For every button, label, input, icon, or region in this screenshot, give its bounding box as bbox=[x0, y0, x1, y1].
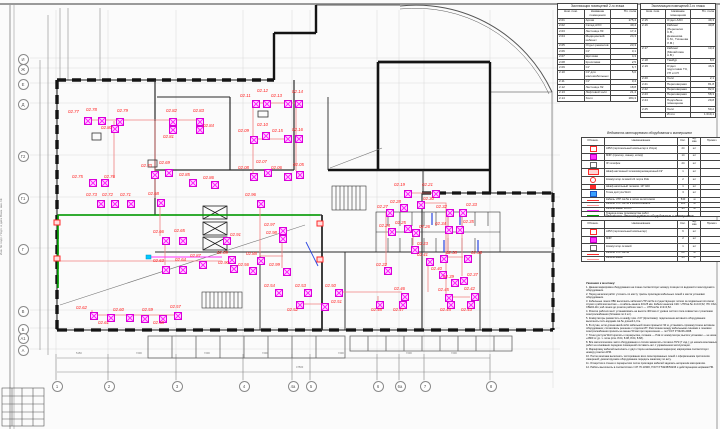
grid-axis-bubble: 3 bbox=[172, 381, 183, 392]
legend-demount-title: Ведомость демонтируемого оборудования и … bbox=[581, 214, 718, 218]
grid-axis-bubble: 6 bbox=[373, 381, 384, 392]
col-header-area: Пл. пола bbox=[691, 9, 716, 18]
sheet-side-text: Инв. № подл. Подп. и дата Взам. инв. № bbox=[0, 198, 3, 255]
dimension-label: 5150 bbox=[76, 352, 82, 355]
grid-axis-bubble: А1 bbox=[18, 333, 29, 344]
legend-symbol bbox=[590, 245, 597, 251]
grid-axis-bubble: 4а bbox=[288, 381, 299, 392]
grid-axis-bubble: Е bbox=[18, 79, 29, 90]
legend-col-qty: Кол. bbox=[678, 138, 689, 146]
grid-axis-bubble: Г bbox=[18, 244, 29, 255]
wall-equipment-symbols bbox=[54, 111, 323, 262]
existing-equipment-box bbox=[148, 160, 157, 167]
legend-symbol bbox=[587, 200, 599, 201]
legend-symbol bbox=[590, 237, 597, 243]
legend-mount-title: Ведомость монтируемого оборудования и ма… bbox=[581, 131, 718, 135]
notes-title: Указания к монтажу: bbox=[586, 281, 718, 285]
title-stamp bbox=[2, 388, 44, 426]
room-row: 2.24Подсобное помещение29,8 bbox=[641, 98, 716, 107]
riser-blue-line bbox=[306, 242, 318, 266]
col-header-name: Название помещения bbox=[666, 9, 691, 18]
note-line: 11. Отверстия в стенах и перекрытиях пос… bbox=[586, 362, 718, 365]
grid-axis-bubble: 1 bbox=[52, 381, 63, 392]
drawing-sheet: { "explication_left": { "title": "Экспли… bbox=[0, 0, 720, 429]
legend-symbol bbox=[590, 229, 597, 235]
room-row: Итого1 019,1 bbox=[641, 112, 716, 117]
existing-equipment-box bbox=[258, 111, 268, 117]
note-line: 12. Работы выполнять в соответствии с СП… bbox=[586, 366, 718, 369]
legend-symbol bbox=[587, 210, 599, 211]
work-zone-boundary-green bbox=[58, 215, 320, 288]
grid-axis-bubble: Г2 bbox=[18, 151, 29, 162]
legend-col-note: Примеч. bbox=[701, 138, 720, 146]
legend-symbol bbox=[587, 205, 599, 206]
installation-notes: Указания к монтажу: 1. Данная маркировка… bbox=[586, 281, 718, 370]
legend-row: Шкаф настенный телекоммуникационный 19"1… bbox=[582, 169, 720, 177]
legend-symbol bbox=[590, 185, 596, 189]
note-line: 8. Все металлические части оборудования … bbox=[586, 341, 718, 347]
legend-col-name: Наименование bbox=[605, 138, 678, 146]
legend-row: Кабель-канал45 м bbox=[582, 256, 720, 261]
col-header-name: Название помещения bbox=[584, 9, 611, 18]
grid-axis-bubble: Г1 bbox=[18, 193, 29, 204]
legend-symbol bbox=[590, 162, 597, 168]
note-line: 2. Перед началом работ уточнить по месту… bbox=[586, 293, 718, 299]
legend-mount-table: Обознач. Наименование Кол. Ед. изм. Прим… bbox=[581, 137, 720, 217]
sanitary-doors-blue bbox=[432, 213, 478, 252]
grid-axis-bubble: Ж bbox=[18, 64, 29, 75]
sanitary-block bbox=[376, 212, 500, 252]
dimension-lines bbox=[40, 8, 553, 380]
note-line: 10. После монтажа выполнить тестирование… bbox=[586, 355, 718, 361]
col-header-num: Ном. пом. bbox=[641, 9, 666, 18]
dimension-label: 7200 bbox=[338, 352, 344, 355]
legend-col-unit: Ед. изм. bbox=[689, 221, 701, 229]
note-line: 4. Розетки рабочих мест устанавливать на… bbox=[586, 310, 718, 316]
explication-table-right: Экспликация помещений 2-го этажа Ном. по… bbox=[640, 3, 716, 118]
grid-axis-bubble: В bbox=[18, 306, 29, 317]
legend-row: МФУ2 шт bbox=[582, 236, 720, 244]
legend-symbol bbox=[587, 254, 599, 255]
note-line: 9. Маркировку кабелей выполнить с двух с… bbox=[586, 348, 718, 354]
legend-col-sym: Обознач. bbox=[582, 138, 605, 146]
legend-symbol bbox=[588, 169, 599, 175]
grid-axis-bubble: 6а bbox=[395, 381, 406, 392]
legend-symbol bbox=[590, 154, 597, 160]
dimension-label: 7200 bbox=[262, 352, 268, 355]
dimension-label: 7200 bbox=[406, 352, 412, 355]
cyan-device-marker bbox=[146, 255, 151, 259]
legend-row: АРМ (персональный компьютер в сборе)24 ш… bbox=[582, 145, 720, 153]
colonnade bbox=[148, 336, 512, 358]
curved-roof-arc bbox=[400, 5, 552, 92]
legend-row: МФУ (принтер, сканер, копир)14 шт bbox=[582, 153, 720, 161]
legend-demount-table: Обознач. Наименование Кол. Ед. изм. Прим… bbox=[581, 220, 720, 262]
note-line: 1. Данная маркировка оборудования на пла… bbox=[586, 286, 718, 292]
dimension-label: 7200 bbox=[204, 352, 210, 355]
legend-col-note: Примеч. bbox=[701, 221, 720, 229]
legend-col-unit: Ед. изм. bbox=[689, 138, 701, 146]
legend-symbol bbox=[587, 259, 599, 260]
note-line: 3. Кабельные линии ЛВС выполнить кабелем… bbox=[586, 300, 718, 309]
grid-axis-bubble: 4 bbox=[239, 381, 250, 392]
legend-symbol bbox=[590, 191, 597, 197]
grid-axis-bubble: Д bbox=[18, 99, 29, 110]
elevator-shafts bbox=[203, 206, 227, 250]
legend-symbol bbox=[590, 177, 596, 183]
legend-row: АРМ (персональный компьютер)6 шт bbox=[582, 228, 720, 236]
col-header-area: Пл. пола bbox=[611, 9, 638, 18]
note-line: 5. Коммутаторы разместить в шкафу пом. 2… bbox=[586, 317, 718, 323]
room-row: 2.17Кабинет (Михайлова А.В.)13,4 bbox=[641, 46, 716, 58]
legend-row: Коммутатор сетевой 24 порта PoE2 шт bbox=[582, 176, 720, 184]
room-row: 2.14Холл184,3 bbox=[558, 96, 638, 101]
terrace-outline bbox=[316, 5, 552, 193]
grid-axis-bubble: 5 bbox=[306, 381, 317, 392]
existing-equipment-box bbox=[92, 133, 101, 140]
room-row: 2.04Медицинский кабинет24,3 bbox=[558, 34, 638, 43]
dimension-label: 47500 bbox=[296, 366, 303, 369]
col-header-num: Ном. пом. bbox=[558, 9, 585, 18]
annotation-diagonals bbox=[60, 148, 382, 305]
legend-col-sym: Обознач. bbox=[582, 221, 605, 229]
dimension-label: 7200 bbox=[136, 352, 142, 355]
grid-axis-bubble: А bbox=[18, 345, 29, 356]
legend-row: Коммутатор сетевой1 шт bbox=[582, 244, 720, 252]
grid-axis-bubble: 8 bbox=[486, 381, 497, 392]
exterior-walls bbox=[57, 5, 553, 330]
legend-col-name: Наименование bbox=[605, 221, 678, 229]
explication-table-left: Экспликация помещений 2-го этажа Ном. по… bbox=[557, 3, 638, 102]
interior-walls bbox=[57, 80, 553, 330]
legend-col-qty: Кол. bbox=[678, 221, 689, 229]
legend-symbol bbox=[590, 146, 597, 152]
note-line: 7. Точки доступа Wi-Fi крепить к перекры… bbox=[586, 334, 718, 340]
grid-axis-bubble: И bbox=[18, 54, 29, 65]
legend-row: Точка доступа Wi-Fi3 шт bbox=[582, 190, 720, 198]
note-line: 6. В случае, если длина какой-либо кабел… bbox=[586, 324, 718, 333]
room-row: 2.16Кабинет (Перепелко С.В., Деменкова С… bbox=[641, 23, 716, 46]
cable-routes bbox=[60, 103, 470, 315]
dimension-label: 7200 bbox=[451, 352, 457, 355]
grid-axis-bubble: 2 bbox=[104, 381, 115, 392]
grid-axis-bubble: 7 bbox=[420, 381, 431, 392]
legend-row: IP-телефон24 шт bbox=[582, 161, 720, 169]
room-row: 2.19Отдел подготовки ТЗ, УП и СП46,9 bbox=[641, 64, 716, 76]
room-row: 2.10СУ для маломобильных5,0 bbox=[558, 70, 638, 79]
